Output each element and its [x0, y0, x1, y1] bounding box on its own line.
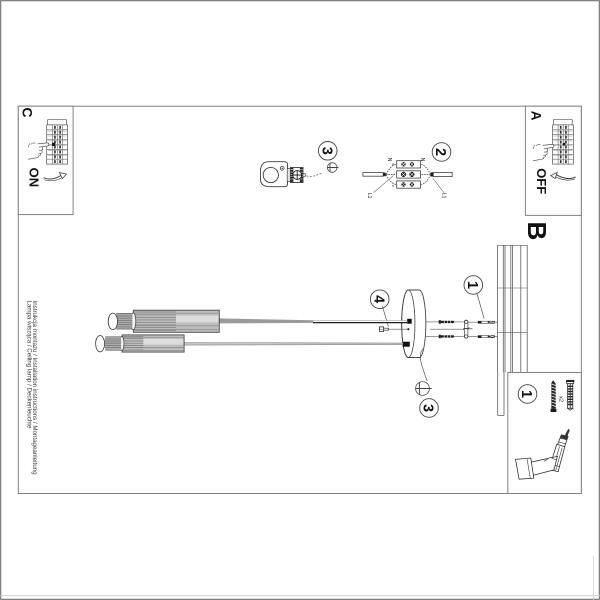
- svg-text:A: A: [529, 111, 544, 121]
- svg-text:N: N: [386, 158, 392, 162]
- svg-text:4: 4: [370, 295, 386, 303]
- svg-text:B: B: [522, 222, 552, 241]
- svg-text:3: 3: [420, 404, 436, 412]
- svg-text:1: 1: [518, 390, 534, 398]
- svg-text:L1: L1: [366, 193, 372, 199]
- svg-text:3: 3: [318, 147, 334, 155]
- svg-text:x2: x2: [557, 396, 563, 402]
- svg-text:OFF: OFF: [534, 168, 549, 194]
- svg-text:ON: ON: [26, 168, 41, 188]
- svg-text:Lampa wisząca / Ceiling lamp /: Lampa wisząca / Ceiling lamp / Deckenleu…: [26, 301, 33, 429]
- svg-text:C: C: [20, 107, 36, 117]
- svg-text:1: 1: [464, 281, 480, 289]
- svg-text:L1: L1: [441, 193, 447, 199]
- svg-text:N: N: [419, 158, 425, 162]
- svg-text:2: 2: [432, 148, 448, 156]
